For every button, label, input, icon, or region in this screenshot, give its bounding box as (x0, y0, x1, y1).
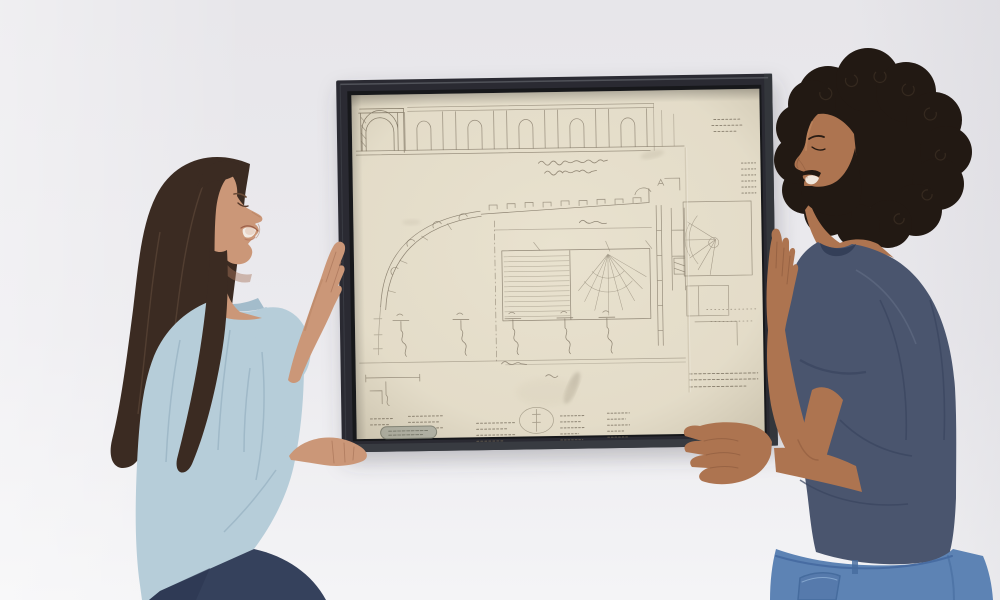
photo-illustration (0, 0, 1000, 600)
framed-artwork (336, 74, 778, 453)
jeans-pocket (798, 573, 840, 600)
paper-vignette (351, 89, 764, 439)
photo-scene (0, 0, 1000, 600)
woman-cheek-blush (245, 227, 255, 235)
jeans-belt-loop (852, 560, 858, 574)
